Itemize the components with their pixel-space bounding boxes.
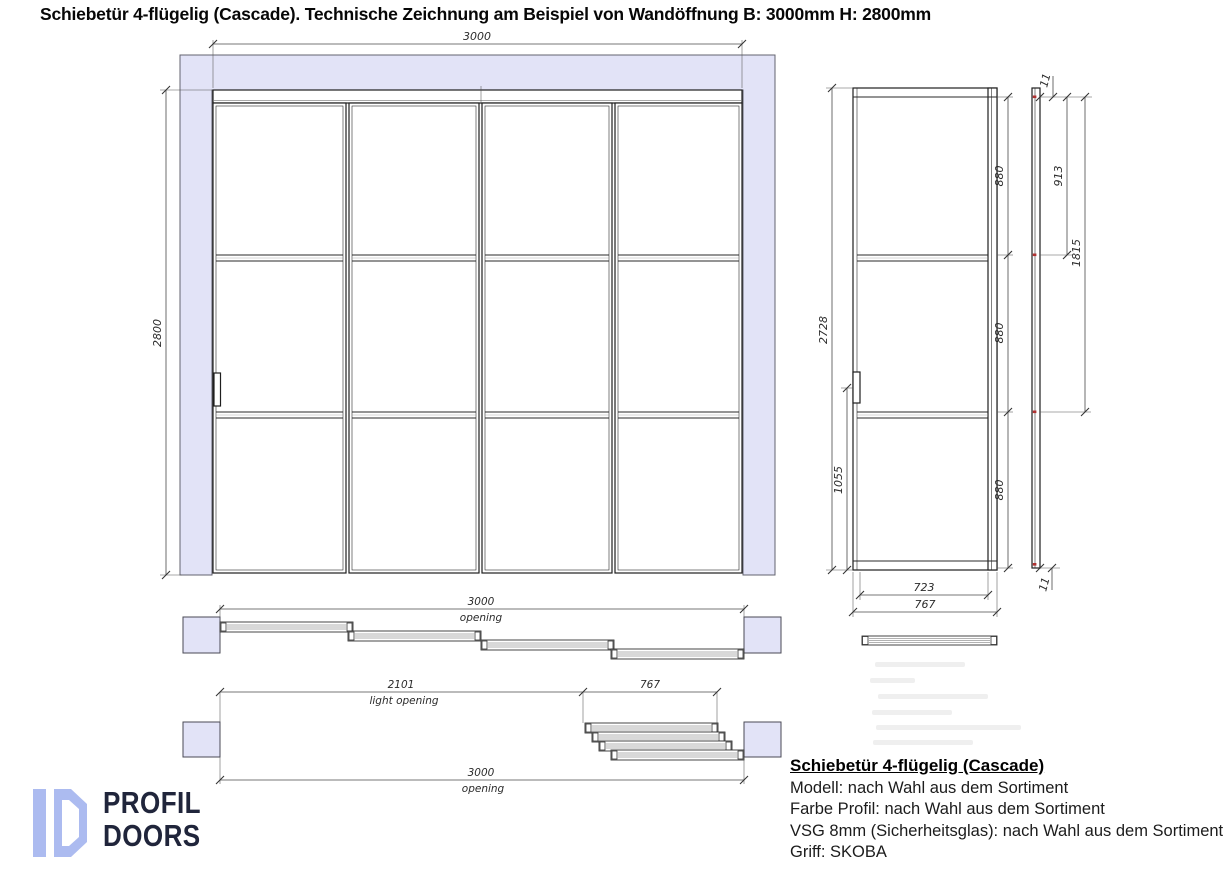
edge-profile-view: 11 913 1815 11 <box>1032 72 1092 593</box>
plan-panel-4 <box>611 649 744 659</box>
stacked-panel-2 <box>592 732 725 742</box>
edge-1815-dimension: 1815 <box>1070 93 1089 416</box>
dim-row-1: 880 <box>993 166 1006 187</box>
plan-view-closed: 3000 opening <box>183 596 781 659</box>
profildoors-logo: PROFIL DOORS <box>33 786 220 860</box>
plan-view-open: 2101 light opening 767 3000 opening <box>183 679 781 795</box>
dim-edge-top: 11 <box>1037 72 1053 89</box>
dim-handle-offset: 1055 <box>832 466 845 494</box>
plan-panel-1 <box>220 622 353 632</box>
panel-plan-view <box>862 636 997 645</box>
panel-handle <box>853 372 860 403</box>
logo-wordmark: PROFIL DOORS <box>103 786 201 852</box>
door-panel-1 <box>213 103 346 573</box>
red-mark-top <box>1033 96 1037 99</box>
logo-line-2: DOORS <box>103 819 201 852</box>
red-mark-bottom <box>1033 563 1037 566</box>
dim-plan-open-width: 3000 <box>468 767 495 779</box>
stacked-panel-1 <box>585 723 718 733</box>
dim-plan-open-label: opening <box>462 783 505 795</box>
wall-block-right-open <box>744 722 781 757</box>
dim-row-2: 880 <box>993 323 1006 344</box>
dim-panel-inner-width: 723 <box>914 581 935 594</box>
stacked-panel-3 <box>599 741 732 751</box>
door-panel-4 <box>615 103 742 573</box>
red-mark-mullion-2 <box>1033 411 1037 414</box>
dim-edge-lower: 1815 <box>1070 239 1083 267</box>
single-panel-view: 2728 1055 880 880 880 <box>817 84 1013 645</box>
technical-drawing-page: Schiebetür 4-flügelig (Cascade). Technis… <box>0 0 1230 870</box>
door-panel-3 <box>482 103 612 573</box>
spec-line-handle: Griff: SKOBA <box>790 842 1223 864</box>
spec-block: Schiebetür 4-flügelig (Cascade) Modell: … <box>790 755 1223 864</box>
dim-plan-closed-label: opening <box>460 612 503 624</box>
spec-line-color: Farbe Profil: nach Wahl aus dem Sortimen… <box>790 799 1223 821</box>
dim-light-opening: 2101 <box>388 679 415 691</box>
dim-edge-bottom: 11 <box>1036 576 1052 593</box>
dim-panel-height: 2728 <box>817 316 830 344</box>
door-panel-2 <box>349 103 479 573</box>
spec-line-model: Modell: nach Wahl aus dem Sortiment <box>790 778 1223 800</box>
spec-heading: Schiebetür 4-flügelig (Cascade) <box>790 755 1223 777</box>
plan-panel-3 <box>481 640 614 650</box>
spec-line-glass: VSG 8mm (Sicherheitsglas): nach Wahl aus… <box>790 821 1223 843</box>
front-elevation-view: 3000 2800 <box>151 30 775 579</box>
door-handle <box>214 373 221 406</box>
dim-light-opening-label: light opening <box>369 695 438 707</box>
dim-stack-width: 767 <box>640 679 660 691</box>
door-logo-icon <box>33 786 87 860</box>
drawing-canvas: 3000 2800 <box>0 0 1230 870</box>
wall-block-right <box>744 617 781 653</box>
stacked-panel-4 <box>611 750 744 760</box>
dim-front-width: 3000 <box>463 30 491 43</box>
handle-offset-dimension: 1055 <box>832 384 853 574</box>
header-track <box>213 90 742 103</box>
plan-panel-2 <box>348 631 481 641</box>
dim-row-3: 880 <box>993 480 1006 501</box>
panel-height-dimension: 2728 <box>817 84 853 574</box>
wall-block-left <box>183 617 220 653</box>
dim-front-height: 2800 <box>151 319 164 347</box>
dim-panel-outer-width: 767 <box>915 598 936 611</box>
wall-block-left-open <box>183 722 220 757</box>
panel-width-dimensions: 723 767 <box>849 572 1001 617</box>
dim-plan-closed-width: 3000 <box>468 596 495 608</box>
edge-bottom-dimension: 11 <box>1036 564 1056 593</box>
dim-edge-upper: 913 <box>1052 166 1065 187</box>
red-mark-mullion-1 <box>1033 254 1037 257</box>
edge-913-dimension: 913 <box>1052 93 1071 259</box>
logo-line-1: PROFIL <box>103 786 201 819</box>
watermark <box>870 662 1021 745</box>
